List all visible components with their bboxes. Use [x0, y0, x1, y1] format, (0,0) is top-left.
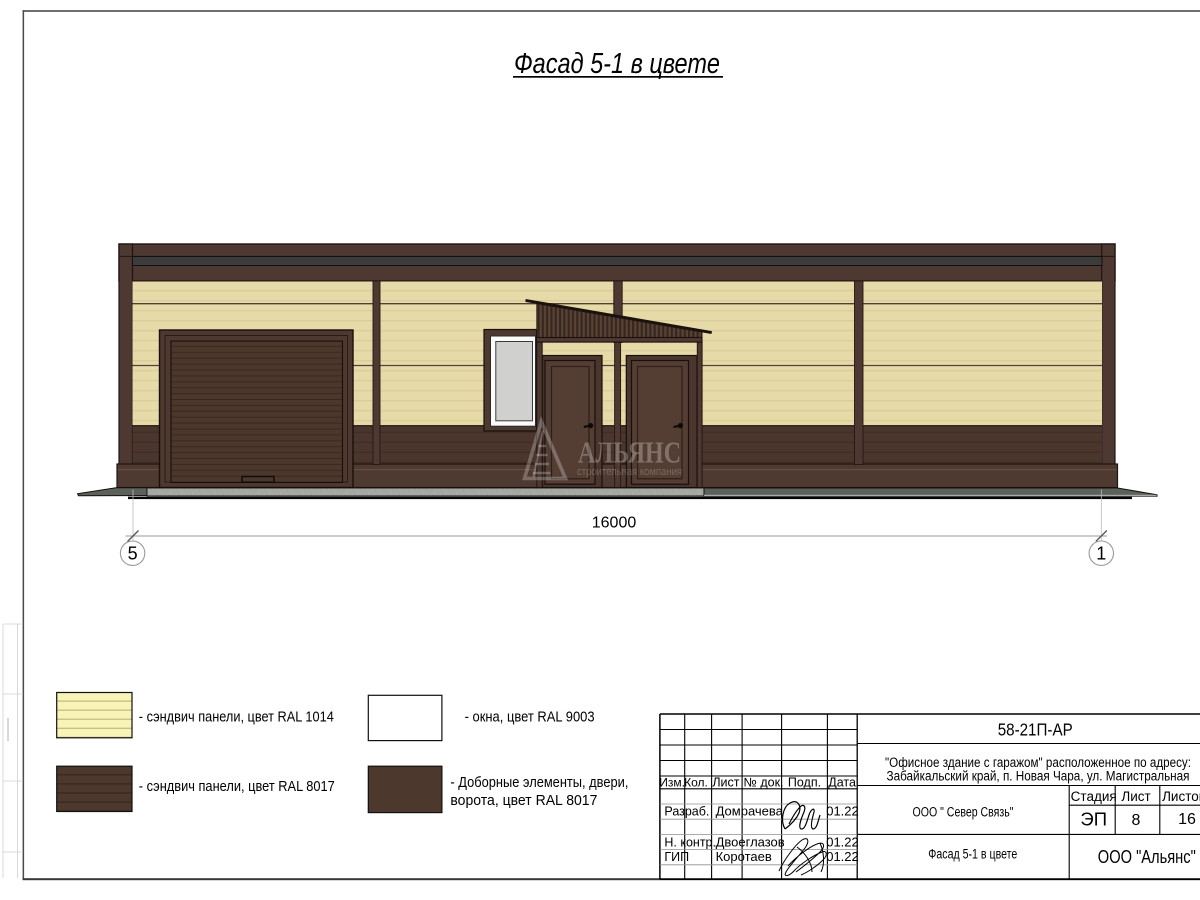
- svg-text:Стадия: Стадия: [1071, 789, 1117, 804]
- svg-text:- окна, цвет RAL 9003: - окна, цвет RAL 9003: [465, 709, 595, 726]
- svg-text:Лист: Лист: [1121, 789, 1150, 804]
- svg-text:Фасад 5-1 в цвете: Фасад 5-1 в цвете: [928, 847, 1017, 862]
- svg-text:Подп.: Подп.: [788, 775, 821, 789]
- svg-text:строительная компания: строительная компания: [577, 466, 682, 478]
- svg-text:01.22: 01.22: [826, 804, 859, 819]
- svg-text:ООО " Север Связь": ООО " Север Связь": [913, 805, 1014, 820]
- svg-text:ООО "Альянс": ООО "Альянс": [1098, 847, 1196, 867]
- svg-text:Коротаев: Коротаев: [716, 849, 772, 864]
- svg-text:01.22: 01.22: [826, 834, 859, 849]
- svg-text:58-21П-АР: 58-21П-АР: [998, 719, 1073, 739]
- svg-text:Домрачева: Домрачева: [716, 804, 784, 819]
- svg-text:Двоеглазов: Двоеглазов: [716, 834, 785, 849]
- svg-text:Фасад 5-1 в цвете: Фасад 5-1 в цвете: [514, 48, 720, 80]
- svg-text:Кол.: Кол.: [684, 775, 708, 789]
- svg-text:8: 8: [1132, 812, 1141, 829]
- svg-text:Забайкальский край, п. Новая Ч: Забайкальский край, п. Новая Чара, ул. М…: [887, 769, 1190, 784]
- svg-text:- сэндвич панели, цвет RAL 101: - сэндвич панели, цвет RAL 1014: [139, 709, 334, 726]
- svg-text:Листов: Листов: [1162, 789, 1200, 804]
- svg-text:- сэндвич панели, цвет RAL 801: - сэндвич панели, цвет RAL 8017: [139, 778, 335, 795]
- svg-text:- Доборные элементы, двери,: - Доборные элементы, двери,: [450, 774, 628, 791]
- svg-text:16: 16: [1178, 811, 1196, 828]
- svg-text:1: 1: [1096, 544, 1106, 564]
- svg-text:Изм.: Изм.: [659, 775, 685, 789]
- svg-text:АЛЬЯНС: АЛЬЯНС: [578, 435, 681, 470]
- svg-text:16000: 16000: [592, 515, 637, 532]
- svg-text:01.22: 01.22: [826, 849, 859, 864]
- svg-text:Разраб.: Разраб.: [664, 805, 709, 819]
- svg-text:Дата: Дата: [828, 775, 856, 789]
- svg-text:Лист: Лист: [712, 775, 739, 789]
- svg-text:ГИП: ГИП: [664, 850, 689, 864]
- svg-text:№ док.: № док.: [743, 775, 783, 789]
- svg-text:Н. контр.: Н. контр.: [664, 835, 716, 849]
- svg-text:ворота, цвет RAL 8017: ворота, цвет RAL 8017: [450, 792, 597, 809]
- svg-text:ЭП: ЭП: [1080, 809, 1107, 830]
- svg-text:5: 5: [128, 544, 138, 564]
